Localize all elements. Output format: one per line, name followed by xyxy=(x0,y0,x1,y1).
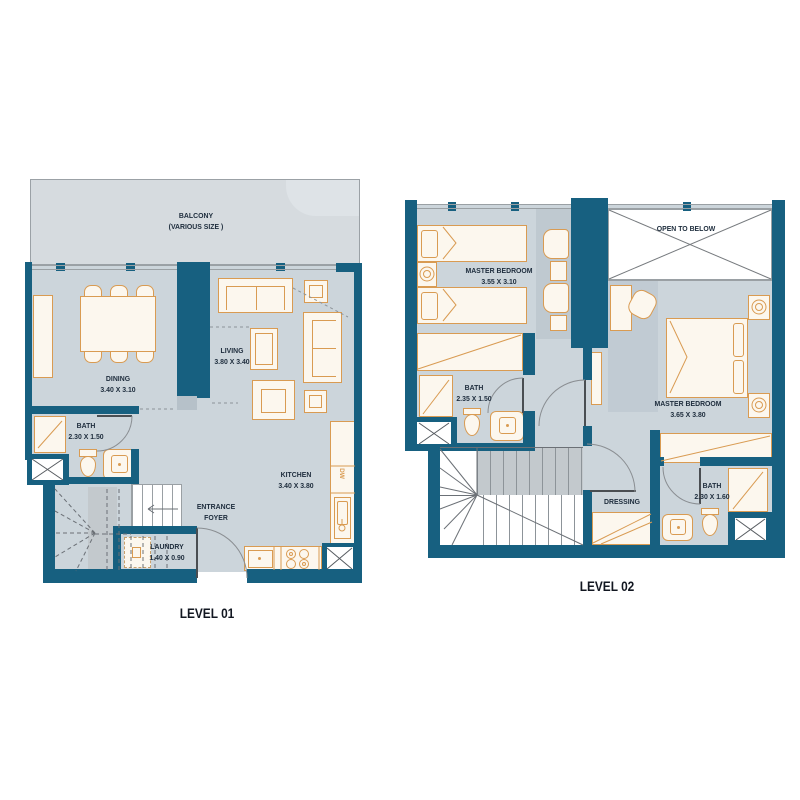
shower xyxy=(728,468,768,512)
washer xyxy=(124,537,151,568)
coffee-table xyxy=(250,328,278,370)
label-open-to-below: OPEN TO BELOW xyxy=(657,224,716,235)
floorplan-sheet: DW xyxy=(0,0,800,800)
pillow xyxy=(421,292,438,320)
lounge-chair xyxy=(543,229,569,259)
dining-table xyxy=(80,296,156,352)
window-mullion xyxy=(448,202,456,211)
exterior-cutout xyxy=(25,483,43,578)
label-master-bedroom-1: MASTER BEDROOM3.55 X 3.10 xyxy=(465,266,532,287)
lounge-chair xyxy=(543,283,569,313)
side-table xyxy=(304,280,328,303)
label-master-bedroom-2: MASTER BEDROOM3.65 X 3.80 xyxy=(654,399,721,420)
shaft-wall xyxy=(571,198,608,348)
side-table xyxy=(550,315,567,331)
laundry-wall xyxy=(113,526,197,534)
label-kitchen: KITCHEN3.40 X 3.80 xyxy=(278,470,313,491)
level01-title: LEVEL 01 xyxy=(180,606,235,621)
kitchen-counter xyxy=(330,421,355,546)
side-table xyxy=(550,261,567,281)
kitchen-counter xyxy=(244,546,322,571)
wall xyxy=(405,200,417,450)
bath-wall xyxy=(700,457,772,466)
hall-wall xyxy=(583,348,592,380)
staircase-upper-treads xyxy=(477,447,583,495)
label-laundry: LAUNDRY1.40 X 0.90 xyxy=(149,542,184,563)
open-to-below-area xyxy=(608,209,772,280)
side-table xyxy=(304,390,327,413)
sofa xyxy=(303,312,342,383)
sideboard xyxy=(33,295,53,378)
nightstand xyxy=(748,393,770,418)
label-bath-l2-2: BATH2.30 X 1.60 xyxy=(694,481,729,502)
dressing-wall xyxy=(583,490,592,545)
shower xyxy=(34,416,66,453)
armchair xyxy=(252,380,295,420)
wardrobe xyxy=(417,333,523,371)
bath-wall xyxy=(523,411,535,447)
bath-wall xyxy=(25,406,139,414)
window-mullion xyxy=(511,202,519,211)
label-dressing: DRESSING xyxy=(604,497,640,508)
shower xyxy=(419,375,453,417)
dishwasher-label: DW xyxy=(338,468,345,479)
shaft-wall-light xyxy=(177,396,197,410)
nightstand xyxy=(417,262,437,287)
pillow xyxy=(733,323,744,357)
bed xyxy=(666,318,748,398)
wall xyxy=(354,263,362,583)
pillow xyxy=(733,360,744,394)
window-mullion xyxy=(276,263,285,271)
wall xyxy=(25,262,32,460)
label-bath-l1: BATH2.30 X 1.50 xyxy=(68,421,103,442)
vanity xyxy=(490,411,524,441)
shaft-wall xyxy=(177,262,210,398)
shaft-symbol xyxy=(728,512,772,545)
window-mullion xyxy=(683,202,691,211)
stairs-wall xyxy=(43,481,55,573)
bath-wall xyxy=(64,477,139,484)
sink xyxy=(334,497,351,539)
bottom-wall xyxy=(428,545,785,558)
laundry-wall xyxy=(113,526,121,572)
label-living: LIVING3.80 X 3.40 xyxy=(214,346,249,367)
mirror xyxy=(591,352,602,405)
label-balcony: BALCONY(VARIOUS SIZE ) xyxy=(169,211,224,232)
wardrobe-wall xyxy=(523,333,535,375)
staircase-lower-treads xyxy=(483,495,583,545)
wardrobe xyxy=(592,512,653,545)
window-mullion xyxy=(126,263,135,271)
hall-wall xyxy=(583,426,592,446)
bed xyxy=(417,287,527,324)
nightstand xyxy=(748,295,770,320)
bath-wall xyxy=(650,457,664,466)
label-bath-l2-1: BATH2.35 X 1.50 xyxy=(456,383,491,404)
wall xyxy=(772,200,785,558)
level02-title: LEVEL 02 xyxy=(580,579,635,594)
pillow xyxy=(421,230,438,258)
sofa xyxy=(218,278,293,313)
dressing-wall xyxy=(650,430,660,545)
label-dining: DINING3.40 X 3.10 xyxy=(100,374,135,395)
bed xyxy=(417,225,527,262)
stairs-wall xyxy=(428,447,440,545)
bottom-wall xyxy=(43,569,197,583)
shaft-symbol xyxy=(27,454,69,485)
shaft-symbol xyxy=(322,543,358,573)
label-entrance-foyer: ENTRANCEFOYER xyxy=(197,502,235,523)
window-mullion xyxy=(56,263,65,271)
exterior-cutout xyxy=(405,450,428,558)
shaft-symbol xyxy=(405,417,457,449)
vanity xyxy=(662,514,693,541)
